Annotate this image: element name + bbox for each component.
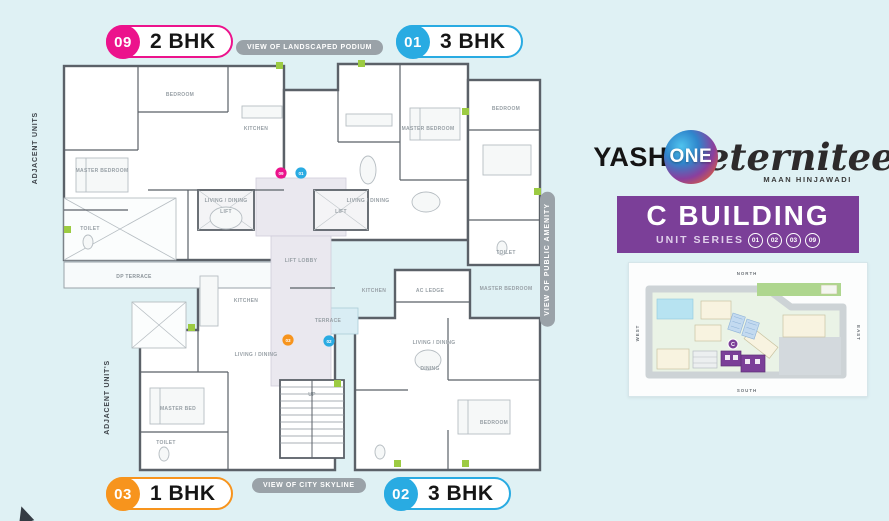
svg-text:LIVING / DINING: LIVING / DINING bbox=[205, 198, 248, 204]
svg-text:BEDROOM: BEDROOM bbox=[166, 92, 194, 98]
svg-text:LIFT LOBBY: LIFT LOBBY bbox=[285, 258, 318, 264]
svg-text:LIFT: LIFT bbox=[220, 209, 232, 215]
svg-text:KITCHEN: KITCHEN bbox=[234, 298, 258, 304]
adjacent-units-label-upper: ADJACENT UNITS bbox=[32, 112, 39, 184]
unit-series-badge: 02 bbox=[767, 233, 782, 248]
brand-location-text: MAAN HINJAWADI bbox=[763, 175, 852, 184]
site-map-card: C NORTH SOUTH WEST EAST bbox=[628, 262, 868, 397]
svg-text:UP: UP bbox=[308, 392, 316, 398]
svg-text:TOILET: TOILET bbox=[80, 226, 100, 232]
brand-yash-text: YASH bbox=[593, 142, 668, 173]
svg-text:EAST: EAST bbox=[856, 325, 861, 341]
svg-text:C: C bbox=[731, 342, 735, 348]
brand-one-text: ONE bbox=[664, 130, 718, 184]
view-label-skyline: VIEW OF CITY SKYLINE bbox=[252, 478, 366, 493]
svg-text:TOILET: TOILET bbox=[156, 440, 176, 446]
svg-text:LIVING / DINING: LIVING / DINING bbox=[235, 352, 278, 358]
unit-series-badge: 09 bbox=[805, 233, 820, 248]
unit-number-badge: 09 bbox=[106, 25, 140, 59]
svg-text:SOUTH: SOUTH bbox=[737, 388, 757, 393]
svg-text:MASTER BEDROOM: MASTER BEDROOM bbox=[402, 126, 455, 132]
svg-text:LIFT: LIFT bbox=[335, 209, 347, 215]
svg-text:MASTER BED: MASTER BED bbox=[160, 406, 196, 412]
svg-text:LIVING / DINING: LIVING / DINING bbox=[347, 198, 390, 204]
svg-text:01: 01 bbox=[298, 171, 304, 176]
brand-eternitee-text: eternitee bbox=[706, 139, 889, 176]
unit-number-badge: 02 bbox=[384, 477, 418, 511]
legend-unit-09: 09 2 BHK bbox=[106, 25, 233, 58]
north-arrow-icon bbox=[14, 504, 34, 521]
brand-logo: YASH ONE eternitee MAAN HINJAWADI bbox=[616, 124, 872, 190]
adjacent-units-label-lower: ADJACENT UNIT'S bbox=[104, 360, 111, 435]
unit-type-label: 2 BHK bbox=[150, 30, 216, 54]
legend-unit-02: 02 3 BHK bbox=[384, 477, 511, 510]
svg-text:MASTER BEDROOM: MASTER BEDROOM bbox=[76, 168, 129, 174]
svg-text:TERRACE: TERRACE bbox=[315, 318, 342, 324]
legend-unit-03: 03 1 BHK bbox=[106, 477, 233, 510]
svg-text:TOILET: TOILET bbox=[496, 250, 516, 256]
svg-text:03: 03 bbox=[285, 338, 291, 343]
building-title: C BUILDING bbox=[646, 202, 829, 230]
unit-type-label: 1 BHK bbox=[150, 482, 216, 506]
svg-text:BEDROOM: BEDROOM bbox=[492, 106, 520, 112]
brochure-page: MASTER BEDROOM BEDROOM KITCHEN LIVING / … bbox=[0, 0, 889, 521]
unit-series-badge: 03 bbox=[786, 233, 801, 248]
unit-series-row: UNIT SERIES 01 02 03 09 bbox=[656, 233, 820, 248]
svg-text:NORTH: NORTH bbox=[737, 271, 758, 276]
svg-text:WEST: WEST bbox=[635, 325, 640, 342]
legend-unit-01: 01 3 BHK bbox=[396, 25, 523, 58]
site-map: C NORTH SOUTH WEST EAST bbox=[629, 263, 867, 396]
view-label-amenity: VIEW OF PUBLIC AMENITY bbox=[540, 192, 555, 327]
unit-number-badge: 01 bbox=[396, 25, 430, 59]
unit-type-label: 3 BHK bbox=[428, 482, 494, 506]
unit-number-badge: 03 bbox=[106, 477, 140, 511]
svg-text:LIVING / DINING: LIVING / DINING bbox=[413, 340, 456, 346]
view-label-podium: VIEW OF LANDSCAPED PODIUM bbox=[236, 40, 383, 55]
svg-text:BEDROOM: BEDROOM bbox=[480, 420, 508, 426]
svg-text:MASTER BEDROOM: MASTER BEDROOM bbox=[480, 286, 533, 292]
svg-text:KITCHEN: KITCHEN bbox=[362, 288, 386, 294]
svg-text:AC LEDGE: AC LEDGE bbox=[416, 288, 445, 294]
svg-text:DP TERRACE: DP TERRACE bbox=[116, 274, 152, 280]
svg-text:KITCHEN: KITCHEN bbox=[244, 126, 268, 132]
unit-series-label: UNIT SERIES bbox=[656, 234, 744, 246]
svg-text:09: 09 bbox=[278, 171, 284, 176]
yashone-globe-icon: ONE bbox=[664, 130, 718, 184]
unit-series-badge: 01 bbox=[748, 233, 763, 248]
unit-type-label: 3 BHK bbox=[440, 30, 506, 54]
svg-text:DINING: DINING bbox=[420, 366, 439, 372]
building-banner: C BUILDING UNIT SERIES 01 02 03 09 bbox=[617, 196, 859, 253]
svg-text:02: 02 bbox=[326, 339, 332, 344]
